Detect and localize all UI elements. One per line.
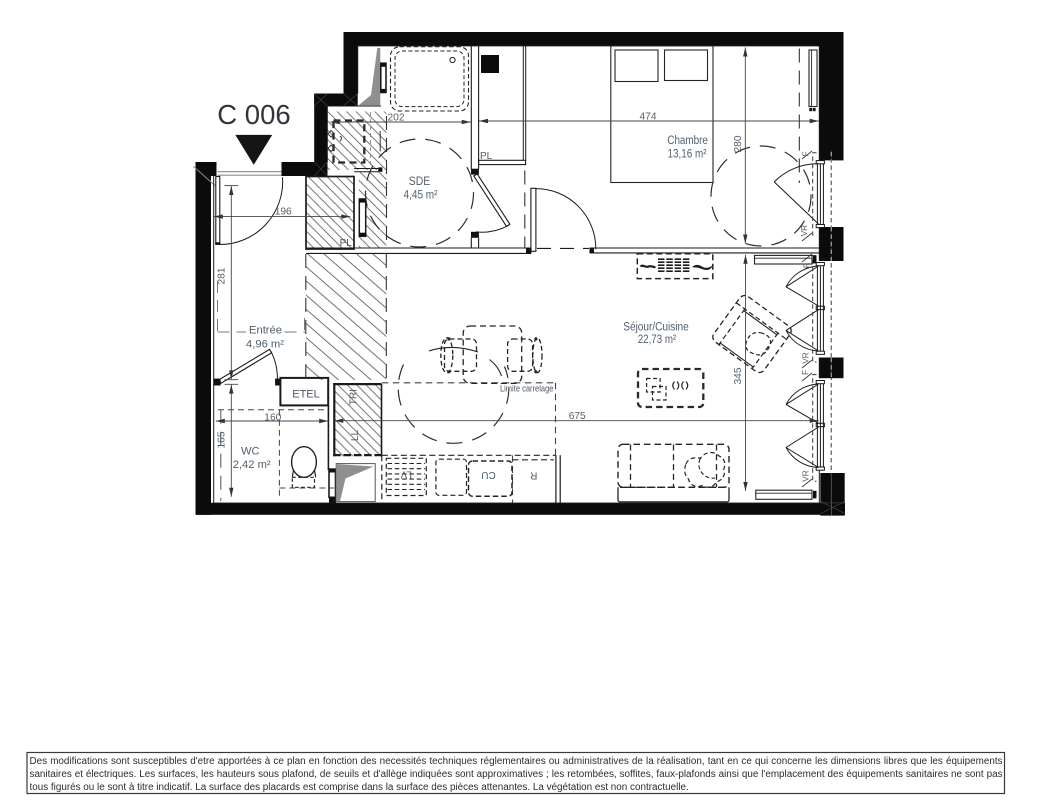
svg-text:2,42 m²: 2,42 m² xyxy=(233,459,271,471)
svg-text:SDE: SDE xyxy=(409,174,431,188)
svg-text:280: 280 xyxy=(733,135,744,152)
svg-text:PL: PL xyxy=(340,238,353,249)
svg-text:474: 474 xyxy=(640,111,657,122)
svg-text:R: R xyxy=(530,470,537,481)
svg-text:202: 202 xyxy=(388,112,405,123)
svg-text:165: 165 xyxy=(217,431,228,448)
svg-text:4,96 m²: 4,96 m² xyxy=(246,338,284,350)
svg-text:Chambre: Chambre xyxy=(667,133,708,147)
svg-text:VR: VR xyxy=(802,352,811,363)
svg-text:281: 281 xyxy=(217,267,228,284)
svg-text:TRI: TRI xyxy=(349,389,360,405)
svg-text:4,45 m²: 4,45 m² xyxy=(404,188,438,202)
svg-text:196: 196 xyxy=(275,207,292,218)
svg-text:VR: VR xyxy=(802,470,811,481)
svg-text:160: 160 xyxy=(264,412,281,423)
svg-text:WC: WC xyxy=(241,445,260,457)
svg-text:LV: LV xyxy=(400,469,412,480)
svg-text:22,73 m²: 22,73 m² xyxy=(638,332,677,346)
svg-text:C 006: C 006 xyxy=(217,99,290,130)
svg-text:PL: PL xyxy=(480,151,493,162)
svg-text:ETEL: ETEL xyxy=(292,388,320,400)
svg-text:F: F xyxy=(802,263,811,268)
svg-text:LL: LL xyxy=(350,430,361,442)
svg-text:Limite carrelage: Limite carrelage xyxy=(500,383,554,393)
svg-text:CU: CU xyxy=(481,469,495,480)
svg-text:VR: VR xyxy=(800,225,809,236)
svg-text:F: F xyxy=(802,151,811,156)
svg-text:13,16 m²: 13,16 m² xyxy=(668,147,707,161)
svg-text:F: F xyxy=(801,370,810,375)
svg-text:675: 675 xyxy=(569,411,586,422)
svg-text:Entrée: Entrée xyxy=(249,325,282,337)
svg-text:345: 345 xyxy=(733,367,744,384)
